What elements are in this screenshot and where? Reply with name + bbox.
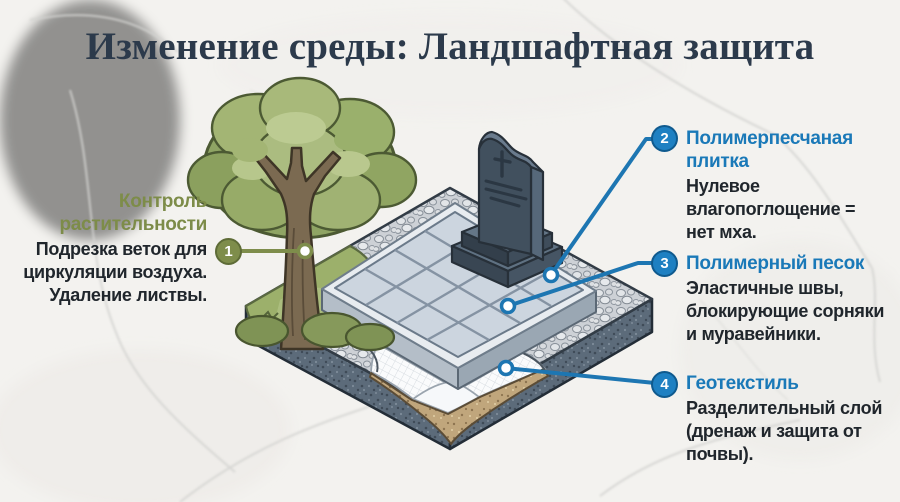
leaf-tuft <box>334 129 366 151</box>
callout-number-badge-4: 4 <box>651 371 678 398</box>
callout-sand: Полимерный песок Эластичные швы, блокиру… <box>686 252 900 346</box>
callout-tile-body: Нулевое влагопоглощение = нет мха. <box>686 175 900 244</box>
callout-number-badge-2: 2 <box>651 125 678 152</box>
headstone-side <box>531 167 543 260</box>
anchor-dot-2 <box>545 269 558 282</box>
callout-number-badge-3: 3 <box>651 250 678 277</box>
anchor-dot-3 <box>502 300 515 313</box>
callout-vegetation-title: Контроль растительности <box>0 190 207 236</box>
callout-number-badge-1: 1 <box>215 238 242 265</box>
callout-sand-body: Эластичные швы, блокирующие сорняки и му… <box>686 277 900 346</box>
callout-vegetation-body: Подрезка веток для циркуляции воздуха. У… <box>0 238 207 307</box>
anchor-dot-1 <box>299 245 312 258</box>
leaf-tuft <box>232 138 268 162</box>
callout-sand-title: Полимерный песок <box>686 252 900 275</box>
callout-vegetation: Контроль растительности Подрезка веток д… <box>0 190 207 307</box>
callout-geotextile: Геотекстиль Разделительный слой (дренаж … <box>686 372 900 466</box>
infographic-page: Изменение среды: Ландшафтная защита Конт… <box>0 0 900 502</box>
page-title: Изменение среды: Ландшафтная защита <box>0 26 900 69</box>
anchor-dot-4 <box>500 362 513 375</box>
callout-geotextile-body: Разделительный слой (дренаж и защита от … <box>686 397 900 466</box>
callout-tile-title: Полимерпесчаная плитка <box>686 127 900 173</box>
callout-tile: Полимерпесчаная плитка Нулевое влагопогл… <box>686 127 900 244</box>
callout-geotextile-title: Геотекстиль <box>686 372 900 395</box>
